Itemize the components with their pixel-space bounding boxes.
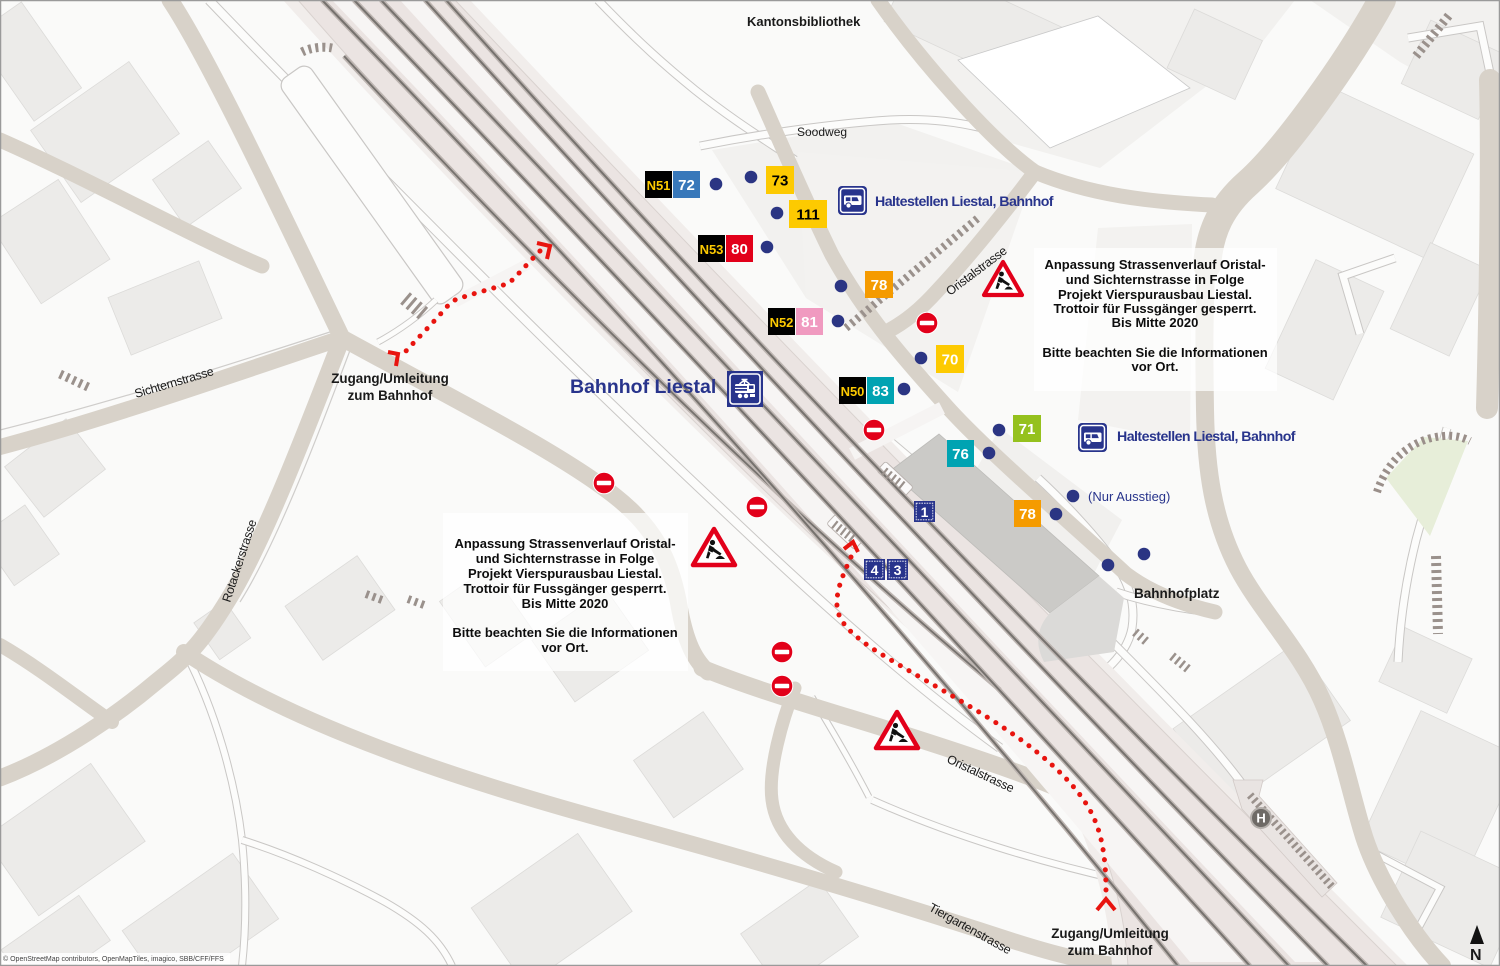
- svg-text:71: 71: [1019, 421, 1036, 438]
- svg-text:Anpassung Strassenverlauf Oris: Anpassung Strassenverlauf Oristal-: [454, 536, 675, 551]
- svg-text:zum Bahnhof: zum Bahnhof: [1068, 943, 1153, 958]
- svg-text:Projekt Vierspurausbau Liestal: Projekt Vierspurausbau Liestal.: [1058, 287, 1252, 302]
- svg-text:N: N: [1470, 947, 1482, 964]
- svg-text:und Sichternstrasse in Folge: und Sichternstrasse in Folge: [1066, 272, 1244, 287]
- svg-text:Bis Mitte 2020: Bis Mitte 2020: [522, 596, 609, 611]
- svg-text:Bahnhofplatz: Bahnhofplatz: [1134, 586, 1220, 601]
- svg-text:Projekt Vierspurausbau Liestal: Projekt Vierspurausbau Liestal.: [468, 566, 662, 581]
- svg-text:4: 4: [871, 562, 879, 578]
- svg-text:70: 70: [942, 352, 959, 369]
- svg-text:N51: N51: [647, 178, 671, 193]
- svg-text:Trottoir für Fussgänger gesper: Trottoir für Fussgänger gesperrt.: [464, 581, 667, 596]
- svg-text:73: 73: [772, 173, 789, 190]
- svg-text:zum Bahnhof: zum Bahnhof: [348, 388, 433, 403]
- svg-text:78: 78: [871, 277, 888, 294]
- svg-text:vor Ort.: vor Ort.: [542, 640, 589, 655]
- svg-text:80: 80: [731, 241, 748, 258]
- svg-text:1: 1: [921, 504, 929, 520]
- svg-text:H: H: [1256, 811, 1265, 826]
- svg-text:78: 78: [1019, 506, 1036, 523]
- svg-text:N50: N50: [841, 384, 865, 399]
- svg-text:vor Ort.: vor Ort.: [1132, 359, 1179, 374]
- svg-text:Bahnhof Liestal: Bahnhof Liestal: [570, 376, 716, 398]
- svg-text:83: 83: [872, 383, 889, 400]
- svg-text:N52: N52: [770, 315, 794, 330]
- svg-text:Bis Mitte 2020: Bis Mitte 2020: [1112, 315, 1199, 330]
- svg-text:111: 111: [796, 207, 819, 224]
- svg-text:76: 76: [952, 446, 969, 463]
- svg-text:Haltestellen Liestal, Bahnhof: Haltestellen Liestal, Bahnhof: [1117, 429, 1296, 445]
- svg-text:81: 81: [801, 314, 818, 331]
- svg-text:72: 72: [678, 177, 695, 194]
- svg-text:© OpenStreetMap contributors,: © OpenStreetMap contributors, OpenMapTil…: [3, 955, 224, 963]
- svg-text:Haltestellen Liestal, Bahnhof: Haltestellen Liestal, Bahnhof: [875, 194, 1054, 210]
- svg-text:Soodweg: Soodweg: [797, 125, 847, 139]
- svg-text:Anpassung Strassenverlauf Oris: Anpassung Strassenverlauf Oristal-: [1044, 257, 1265, 272]
- svg-text:(Nur Ausstieg): (Nur Ausstieg): [1088, 489, 1170, 504]
- svg-text:N53: N53: [700, 242, 724, 257]
- svg-text:3: 3: [894, 562, 902, 578]
- svg-text:Trottoir für Fussgänger gesper: Trottoir für Fussgänger gesperrt.: [1054, 301, 1257, 316]
- svg-text:und Sichternstrasse in Folge: und Sichternstrasse in Folge: [476, 551, 654, 566]
- svg-text:Zugang/Umleitung: Zugang/Umleitung: [331, 371, 449, 386]
- svg-text:Bitte beachten Sie die Informa: Bitte beachten Sie die Informationen: [1042, 345, 1267, 360]
- svg-text:Bitte beachten Sie die Informa: Bitte beachten Sie die Informationen: [452, 625, 677, 640]
- svg-text:Zugang/Umleitung: Zugang/Umleitung: [1051, 926, 1169, 941]
- svg-text:Kantonsbibliothek: Kantonsbibliothek: [747, 14, 861, 29]
